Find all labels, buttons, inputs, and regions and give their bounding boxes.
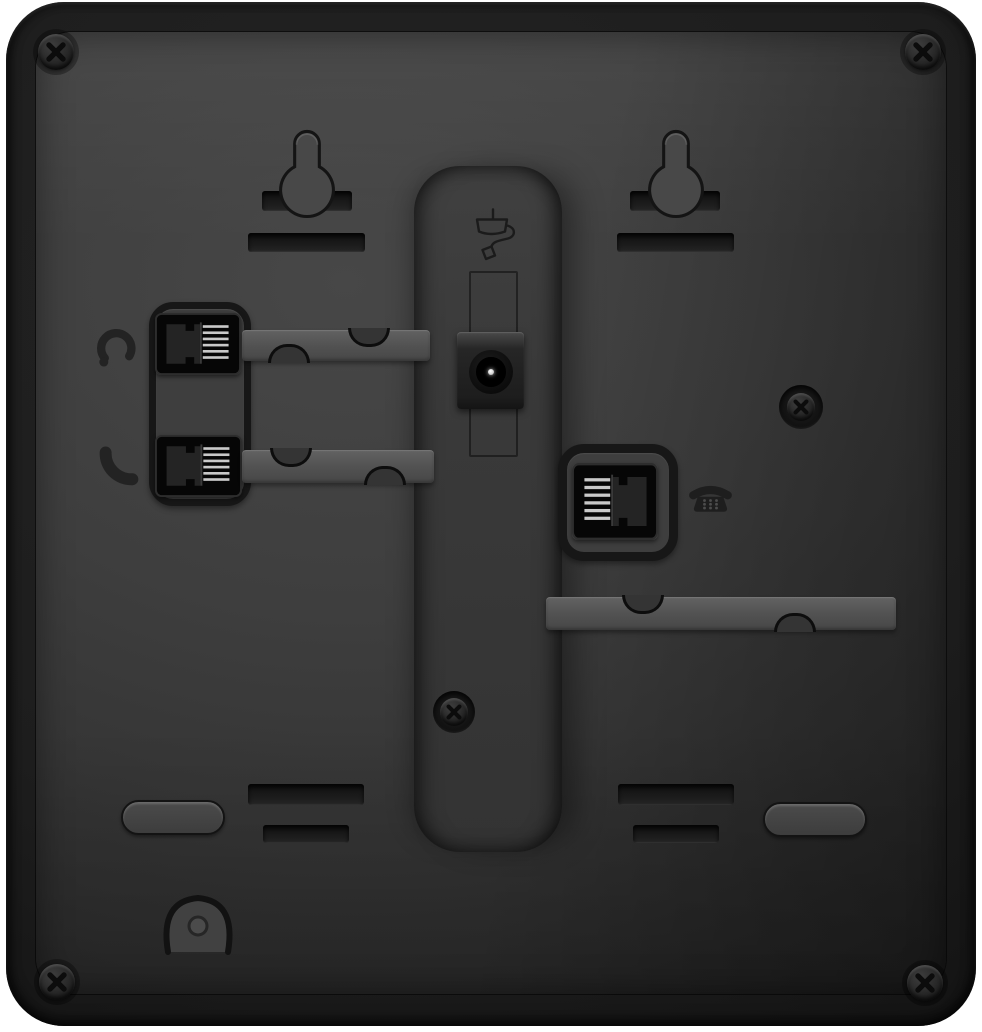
cable-notch [270, 448, 312, 467]
cable-notch [268, 344, 310, 363]
handset-icon [94, 442, 144, 484]
screw-top-right [905, 34, 941, 70]
wall-mount-slot-left-below [248, 233, 365, 252]
handset-jack [155, 435, 242, 497]
screw-bottom-left [39, 964, 75, 1000]
product-photo [0, 0, 982, 1032]
cable-notch [348, 328, 390, 347]
telephone-icon [687, 484, 734, 514]
cable-notch [622, 595, 664, 614]
wall-mount-keyhole-left [270, 126, 344, 218]
stand-channel [414, 166, 562, 852]
headset-jack [155, 313, 241, 375]
screw-center [433, 691, 475, 733]
cable-notch [774, 613, 816, 632]
vent-slot-right-lower [633, 825, 719, 843]
dc-jack-pin [488, 369, 494, 375]
screw-bottom-right [907, 965, 943, 1001]
screw-top-left [38, 34, 74, 70]
power-adapter-icon [462, 206, 520, 263]
headset-cable-channel [242, 330, 430, 361]
line-cable-channel [546, 597, 896, 630]
vent-slot-left-lower [263, 825, 349, 843]
vent-slot-left-upper [248, 784, 364, 805]
cable-hook [156, 876, 240, 956]
screw-middle-right [779, 385, 823, 429]
dc-power-jack [457, 332, 524, 409]
foot-bottom-left [121, 800, 225, 835]
phone-line-jack [572, 463, 658, 540]
wall-mount-keyhole-right [639, 126, 713, 218]
wall-mount-slot-right-below [617, 233, 734, 252]
foot-bottom-right [763, 802, 867, 837]
vent-slot-right-upper [618, 784, 734, 805]
headset-icon [96, 318, 137, 367]
cable-notch [364, 466, 406, 485]
handset-cable-channel [242, 450, 434, 483]
